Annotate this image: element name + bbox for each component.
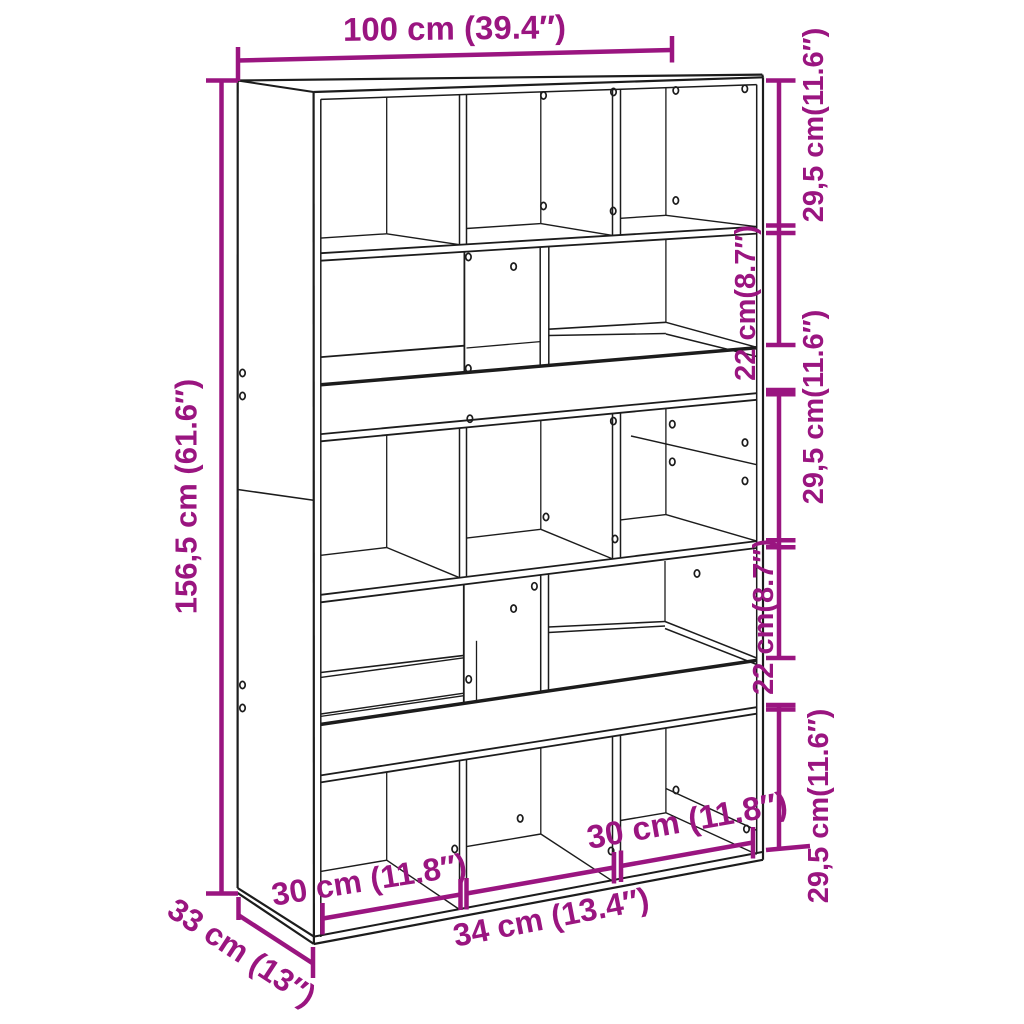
- svg-text:100 cm (39.4″): 100 cm (39.4″): [343, 8, 567, 48]
- svg-text:156,5 cm (61.6″): 156,5 cm (61.6″): [169, 379, 204, 614]
- svg-text:22 cm(8.7″): 22 cm(8.7″): [748, 539, 780, 695]
- svg-text:29,5 cm(11.6″): 29,5 cm(11.6″): [798, 310, 830, 504]
- svg-text:29,5 cm(11.6″): 29,5 cm(11.6″): [798, 28, 830, 222]
- svg-text:29,5 cm(11.6″): 29,5 cm(11.6″): [803, 709, 835, 903]
- svg-text:22 cm(8.7″): 22 cm(8.7″): [730, 225, 762, 381]
